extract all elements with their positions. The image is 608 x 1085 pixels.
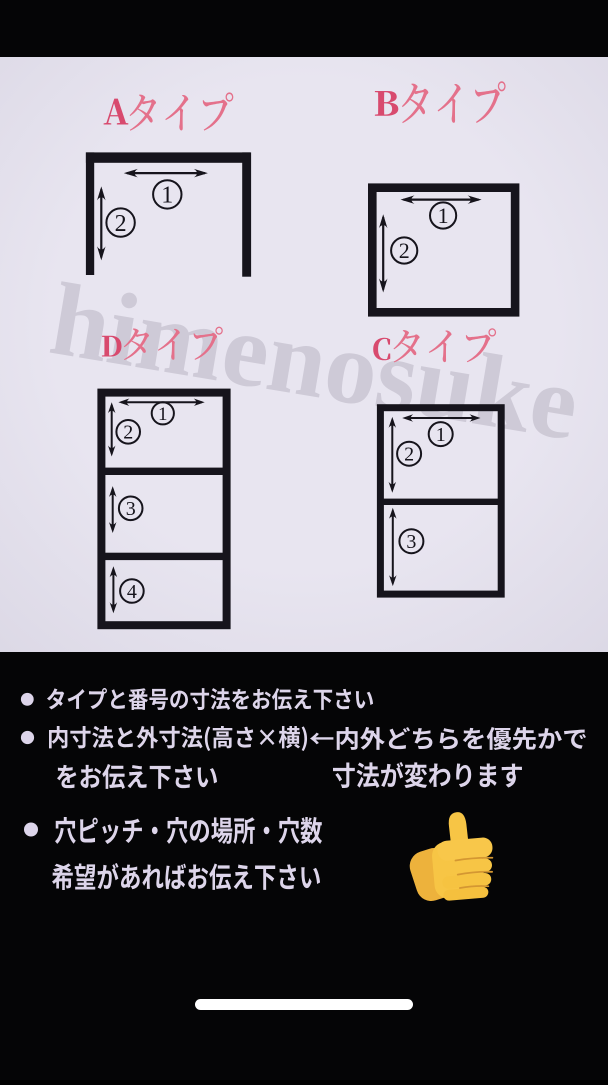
svg-text:2: 2 — [123, 422, 133, 444]
svg-text:1: 1 — [158, 404, 168, 425]
svg-text:2: 2 — [399, 238, 410, 263]
svg-text:3: 3 — [406, 531, 416, 553]
svg-text:2: 2 — [404, 444, 414, 466]
svg-text:1: 1 — [436, 424, 446, 446]
svg-text:1: 1 — [438, 203, 449, 228]
svg-text:2: 2 — [115, 211, 127, 237]
svg-text:3: 3 — [126, 498, 136, 520]
svg-text:4: 4 — [127, 581, 137, 603]
svg-text:1: 1 — [161, 183, 173, 209]
